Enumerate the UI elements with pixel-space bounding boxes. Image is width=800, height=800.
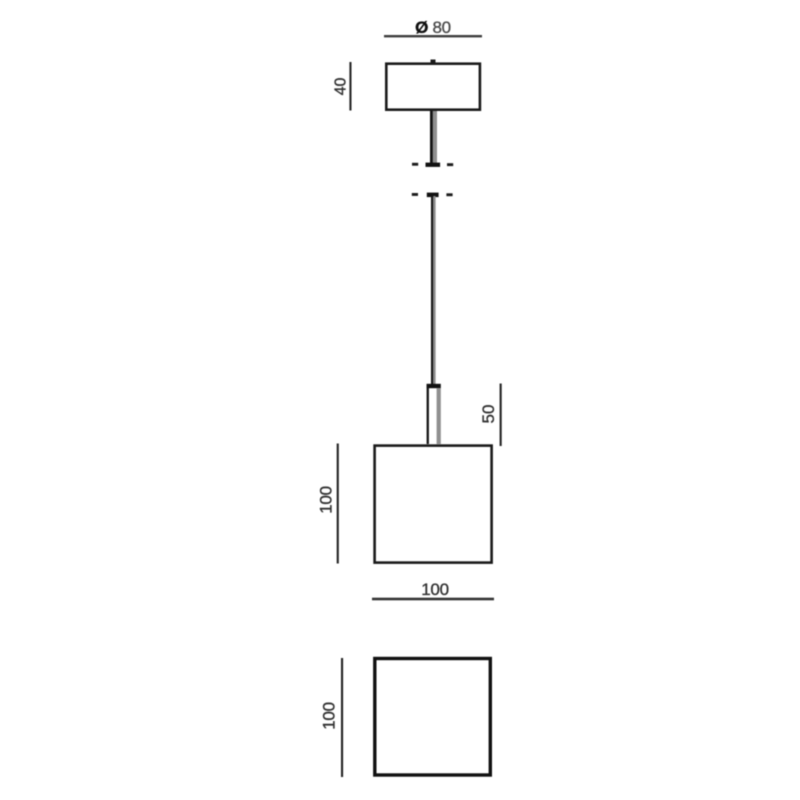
svg-text:100: 100 [319,702,338,729]
svg-text:100: 100 [421,580,448,599]
svg-text:Ø 80: Ø 80 [415,18,451,37]
svg-text:50: 50 [479,405,498,424]
svg-text:40: 40 [333,78,350,96]
svg-text:100: 100 [316,486,335,513]
